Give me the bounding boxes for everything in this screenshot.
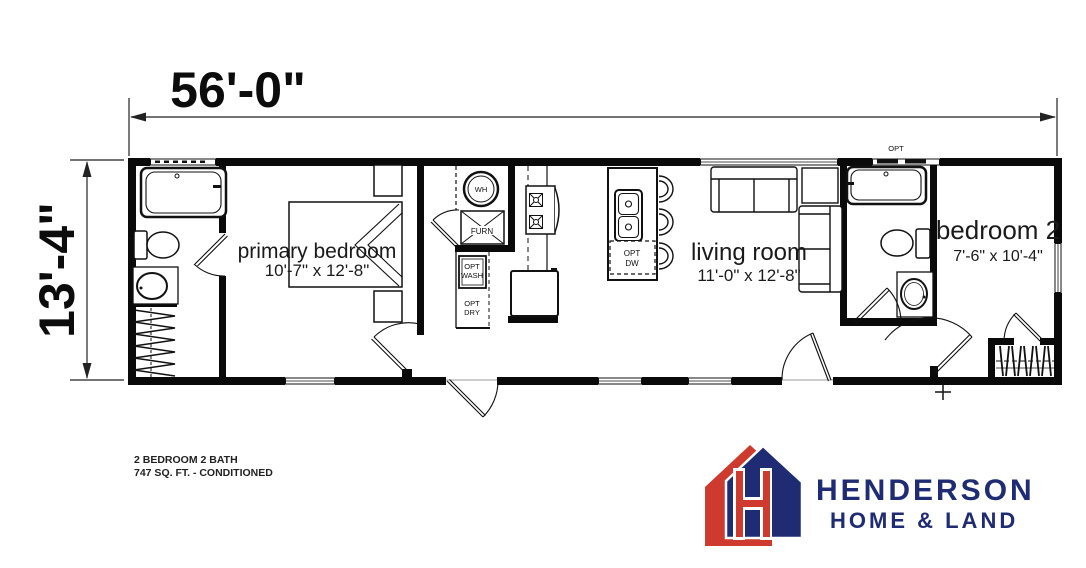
bar-stools-icon	[659, 176, 673, 269]
stove-icon	[526, 186, 559, 234]
living-room-size: 11'-0" x 12'-8"	[697, 266, 800, 285]
door-back-exterior-icon	[446, 377, 498, 417]
sofa-icon	[711, 167, 797, 212]
door-bedroom2-icon	[885, 318, 972, 373]
bathtub2-icon	[847, 167, 926, 204]
closet1-shelves-icon	[134, 308, 175, 377]
opt-dw-label-2: DW	[625, 259, 639, 268]
bathtub1-icon	[141, 168, 226, 217]
window-living-bottom2-icon	[688, 377, 732, 385]
utility-cross-mark	[935, 384, 951, 400]
double-sink-icon	[615, 190, 642, 241]
height-dimension-label: 13'-4"	[29, 202, 85, 338]
primary-bedroom-size: 10'-7" x 12'-8"	[265, 261, 370, 280]
footer-line2: 747 SQ. FT. - CONDITIONED	[134, 467, 273, 479]
logo-mark	[705, 445, 802, 546]
bedroom2-size: 7'-6" x 10'-4"	[953, 248, 1043, 265]
furnace-label: FURN	[471, 227, 493, 236]
window-living-icon	[700, 158, 838, 166]
water-heater-label: WH	[475, 185, 488, 194]
primary-bedroom-label: primary bedroom	[238, 240, 397, 263]
window-opt-bath2-icon	[872, 158, 940, 166]
window-bedroom1-icon	[285, 377, 335, 385]
window-living-bottom1-icon	[598, 377, 642, 385]
width-dimension-label: 56'-0"	[170, 62, 306, 118]
opt-dry-label-1: OPT	[464, 299, 480, 308]
floorplan-page: 56'-0" 13'-4" OPT	[0, 0, 1086, 568]
bedroom2-label: bedroom 2	[936, 215, 1060, 245]
brand-name: HENDERSON	[816, 474, 1035, 507]
footer-line1: 2 BEDROOM 2 BATH	[134, 454, 238, 466]
sink1-icon	[133, 267, 178, 304]
opt-dry-label-2: DRY	[464, 308, 480, 317]
living-room-label: living room	[691, 239, 807, 266]
opt-window-label: OPT	[888, 144, 904, 153]
door-bath1-icon	[194, 234, 228, 276]
floorplan-drawing: 56'-0" 13'-4" OPT	[0, 0, 1086, 568]
door-primary-bedroom-icon	[372, 323, 421, 374]
toilet2-icon	[881, 229, 930, 258]
opt-wash-label-1: OPT	[464, 262, 480, 271]
side-table-icon	[802, 168, 838, 203]
window-bath1-icon	[150, 158, 216, 166]
closet2-hangers-icon	[996, 346, 1054, 376]
door-front-exterior-icon	[782, 333, 833, 385]
opt-dw-label-1: OPT	[624, 249, 641, 258]
refrigerator-icon	[511, 268, 558, 316]
brand-tagline: HOME & LAND	[830, 508, 1018, 533]
window-bedroom2-icon	[1054, 243, 1062, 293]
sink2-icon	[897, 272, 933, 317]
toilet1-icon	[134, 231, 179, 259]
opt-wash-label-2: WASH	[461, 271, 483, 280]
door-utility-icon	[431, 210, 459, 248]
